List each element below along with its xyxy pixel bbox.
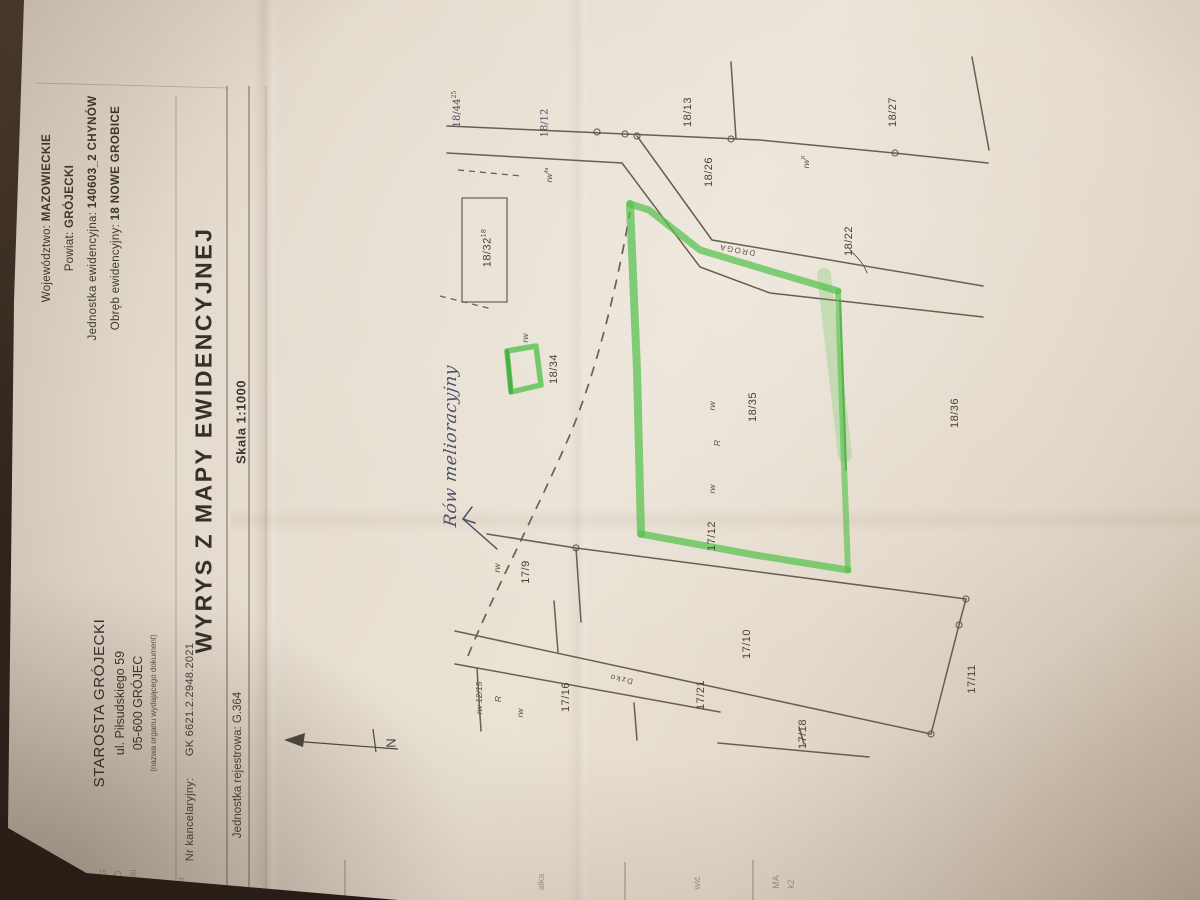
- pen-annotation: 18/12: [540, 109, 551, 138]
- road-lower-2: [455, 664, 720, 712]
- parcel-number-label: 18/34: [548, 354, 560, 384]
- boundary-17-11: [931, 599, 966, 734]
- parcel-number-label: 17/18: [797, 719, 809, 749]
- land-use-marker: rwR: [801, 156, 811, 169]
- pen-annotation: 18/4425: [451, 91, 463, 128]
- land-use-marker: rw 12/15: [474, 682, 484, 715]
- ditch-main: [468, 212, 630, 656]
- land-use-marker: R: [712, 440, 722, 446]
- boundary-18-13: [731, 62, 736, 139]
- land-use-marker: rw: [520, 334, 530, 343]
- form-rule-lines: [35, 83, 266, 900]
- parcel-number-label: 17/10: [741, 629, 753, 659]
- north-arrow: [284, 729, 398, 752]
- cadastral-map-drawing: [0, 0, 1200, 900]
- road-lower-3: [718, 743, 869, 757]
- parcel-number-label: 17/21: [695, 680, 707, 710]
- land-use-marker: rw: [707, 402, 717, 411]
- green-building-accent: [507, 351, 511, 392]
- road-edge-south: [447, 153, 622, 163]
- parcel-number-label: 18/27: [887, 97, 899, 127]
- edge-text-fragment: GRÓ: [113, 871, 123, 892]
- edge-text-fragment: k2: [786, 879, 796, 889]
- parcel-number-label: 17/9: [520, 560, 532, 583]
- parcel-number-label: 17/16: [560, 682, 572, 712]
- tick-17-21: [634, 703, 637, 740]
- pen-arrow: [463, 507, 497, 549]
- parcel-number-label: 18/22: [843, 226, 855, 256]
- boundary-lines: [447, 57, 989, 757]
- land-use-marker: rw: [707, 485, 717, 494]
- photo-of-document: STAROSTA GRÓJECKI ul. Piłsudskiego 59 05…: [0, 0, 1200, 900]
- boundary-branch: [576, 548, 581, 622]
- parcel-number-label: 18/3218: [481, 229, 494, 268]
- land-use-marker: rw: [492, 564, 502, 573]
- land-use-marker: rw: [515, 709, 525, 718]
- parcel-number-label: 17/11: [966, 664, 978, 693]
- ditch-dashed-lines: [440, 170, 630, 656]
- boundary-18-27: [972, 57, 989, 150]
- boundary-17-upper: [487, 534, 966, 599]
- droga-edge-2: [622, 163, 983, 317]
- edge-text-fragment: ałka: [536, 874, 546, 891]
- handwritten-note: Rów melioracyjny: [441, 364, 461, 528]
- ditch-short-1: [458, 170, 522, 176]
- green-highlight-outline: [507, 204, 848, 570]
- parcel-number-label: 18/13: [682, 97, 694, 127]
- land-use-marker: R: [493, 696, 503, 702]
- parcel-number-label: 17/12: [706, 521, 718, 551]
- paper-sheet: STAROSTA GRÓJECKI ul. Piłsudskiego 59 05…: [0, 0, 1200, 900]
- parcel-number-label: 18/26: [703, 157, 715, 187]
- parcel-number-label: 18/36: [949, 398, 961, 428]
- edge-text-fragment: MA: [771, 875, 781, 889]
- tick-17-16: [554, 601, 558, 652]
- road-lower-1: [455, 631, 931, 734]
- edge-text-fragment: udski: [128, 869, 138, 890]
- land-use-marker: rw4a: [544, 168, 554, 183]
- edge-text-fragment: TA G: [98, 869, 108, 889]
- edge-text-fragment: wić: [692, 877, 702, 890]
- green-edge-west: [630, 204, 641, 534]
- green-edge-south: [641, 534, 848, 570]
- edge-text-fragment: ręb: [176, 877, 186, 890]
- north-letter: N: [384, 738, 399, 747]
- parcel-number-label: 18/35: [747, 392, 759, 422]
